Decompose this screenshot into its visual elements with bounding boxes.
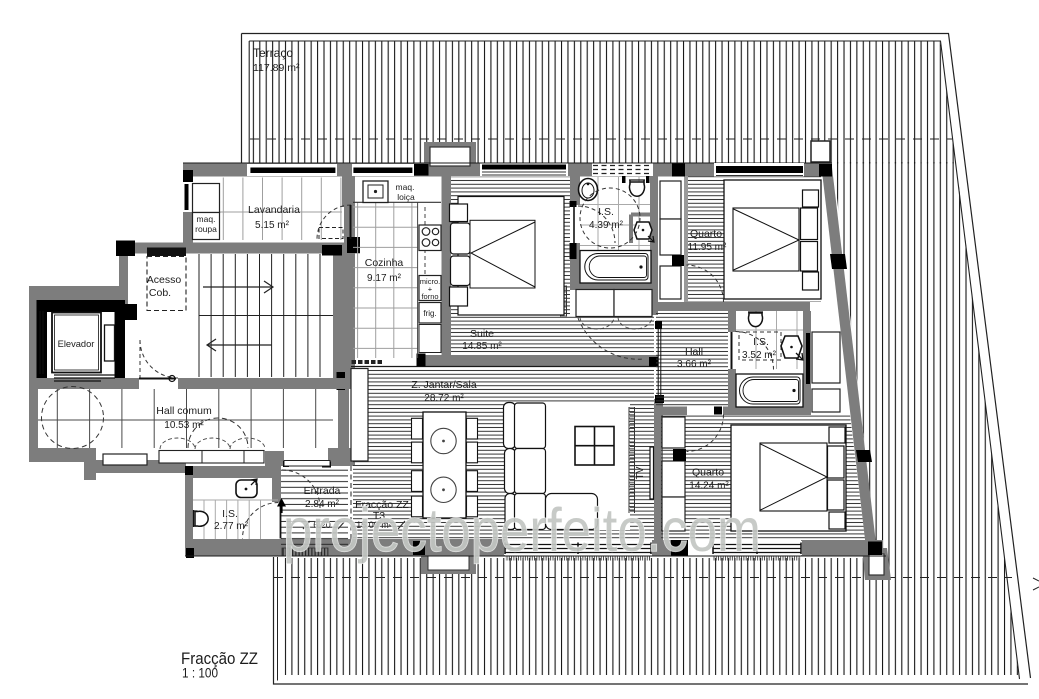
svg-text:11.95 m²: 11.95 m² (688, 242, 727, 253)
svg-text:I.S.: I.S. (598, 206, 614, 218)
svg-text:3.66 m²: 3.66 m² (677, 359, 712, 370)
svg-text:4.39 m²: 4.39 m² (589, 220, 624, 231)
svg-text:roupa: roupa (195, 224, 217, 234)
svg-text:TV: TV (635, 466, 646, 479)
svg-text:Elevador: Elevador (58, 339, 95, 349)
svg-text:117.89 m²: 117.89 m² (253, 62, 300, 74)
svg-text:10.53 m²: 10.53 m² (164, 420, 204, 431)
svg-text:Lavandaria: Lavandaria (248, 204, 300, 216)
svg-text:I.S.: I.S. (753, 336, 769, 348)
svg-text:2.77 m²: 2.77 m² (214, 521, 249, 532)
svg-text:Cob.: Cob. (149, 287, 171, 299)
svg-text:14.85 m²: 14.85 m² (462, 341, 502, 352)
svg-text:frig.: frig. (423, 309, 436, 318)
svg-text:5.15 m²: 5.15 m² (255, 220, 290, 231)
svg-text:Z. Jantar/Sala: Z. Jantar/Sala (411, 379, 477, 391)
svg-text:maq.: maq. (396, 182, 415, 192)
svg-text:28.72 m²: 28.72 m² (424, 393, 464, 404)
svg-text:loiça: loiça (397, 192, 415, 202)
svg-text:projectoperfeito.com: projectoperfeito.com (283, 496, 761, 564)
svg-text:3.52 m²: 3.52 m² (742, 350, 777, 361)
svg-text:Quarto: Quarto (692, 467, 724, 479)
svg-text:Acesso: Acesso (147, 274, 182, 286)
svg-text:9.17 m²: 9.17 m² (367, 273, 402, 284)
svg-text:Suite: Suite (470, 328, 494, 340)
svg-text:Terraço: Terraço (253, 46, 293, 60)
svg-text:1 : 100: 1 : 100 (182, 666, 218, 681)
svg-text:Hall: Hall (685, 346, 703, 358)
svg-text:I.S.: I.S. (222, 508, 238, 520)
svg-text:14.24 m²: 14.24 m² (689, 481, 729, 492)
svg-text:maq.: maq. (197, 214, 216, 224)
svg-text:forno: forno (421, 292, 438, 301)
svg-text:Cozinha: Cozinha (365, 257, 404, 269)
svg-text:Hall comum: Hall comum (156, 405, 212, 417)
svg-text:Quarto: Quarto (690, 228, 722, 240)
